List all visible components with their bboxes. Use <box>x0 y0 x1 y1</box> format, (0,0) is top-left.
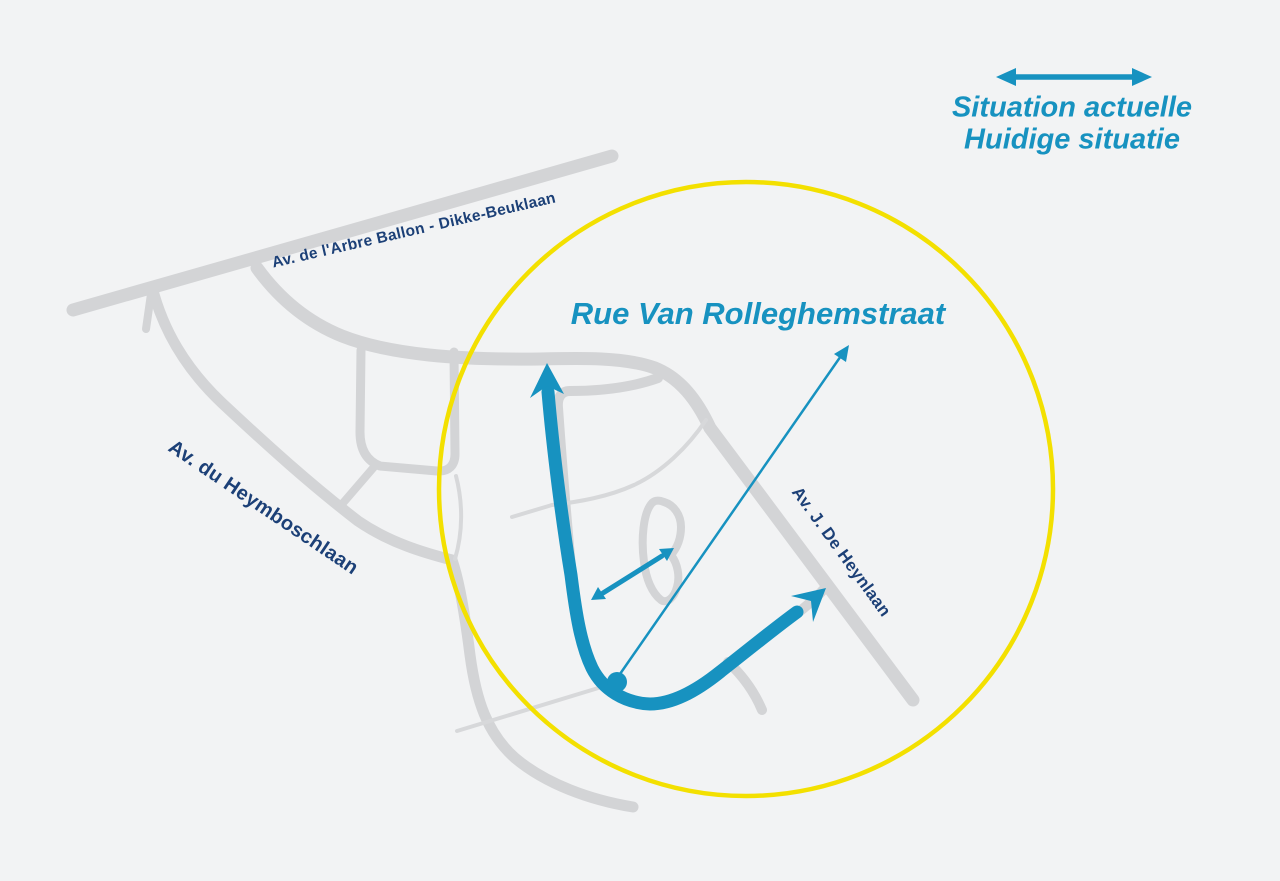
legend-arrowhead-left <box>996 68 1016 86</box>
road-network <box>73 156 913 807</box>
legend-text-fr: Situation actuelle <box>952 92 1192 125</box>
road-block-stub <box>343 467 374 503</box>
leader-dot <box>607 672 627 692</box>
road-inner-lane-stub <box>512 505 552 517</box>
traffic-situation-map: Situation actuelle Huidige situatie Rue … <box>0 0 1280 881</box>
leader-arrowhead <box>834 345 849 362</box>
legend-arrowhead-right <box>1132 68 1152 86</box>
legend-arrow <box>996 68 1152 86</box>
road-rolleghem-loop <box>558 378 823 705</box>
road-block-lane <box>455 476 461 559</box>
map-title: Rue Van Rolleghemstraat <box>571 296 945 332</box>
legend-text-nl: Huidige situatie <box>964 124 1180 157</box>
road-inner-lane <box>552 420 706 505</box>
highlight-circle <box>439 182 1053 796</box>
